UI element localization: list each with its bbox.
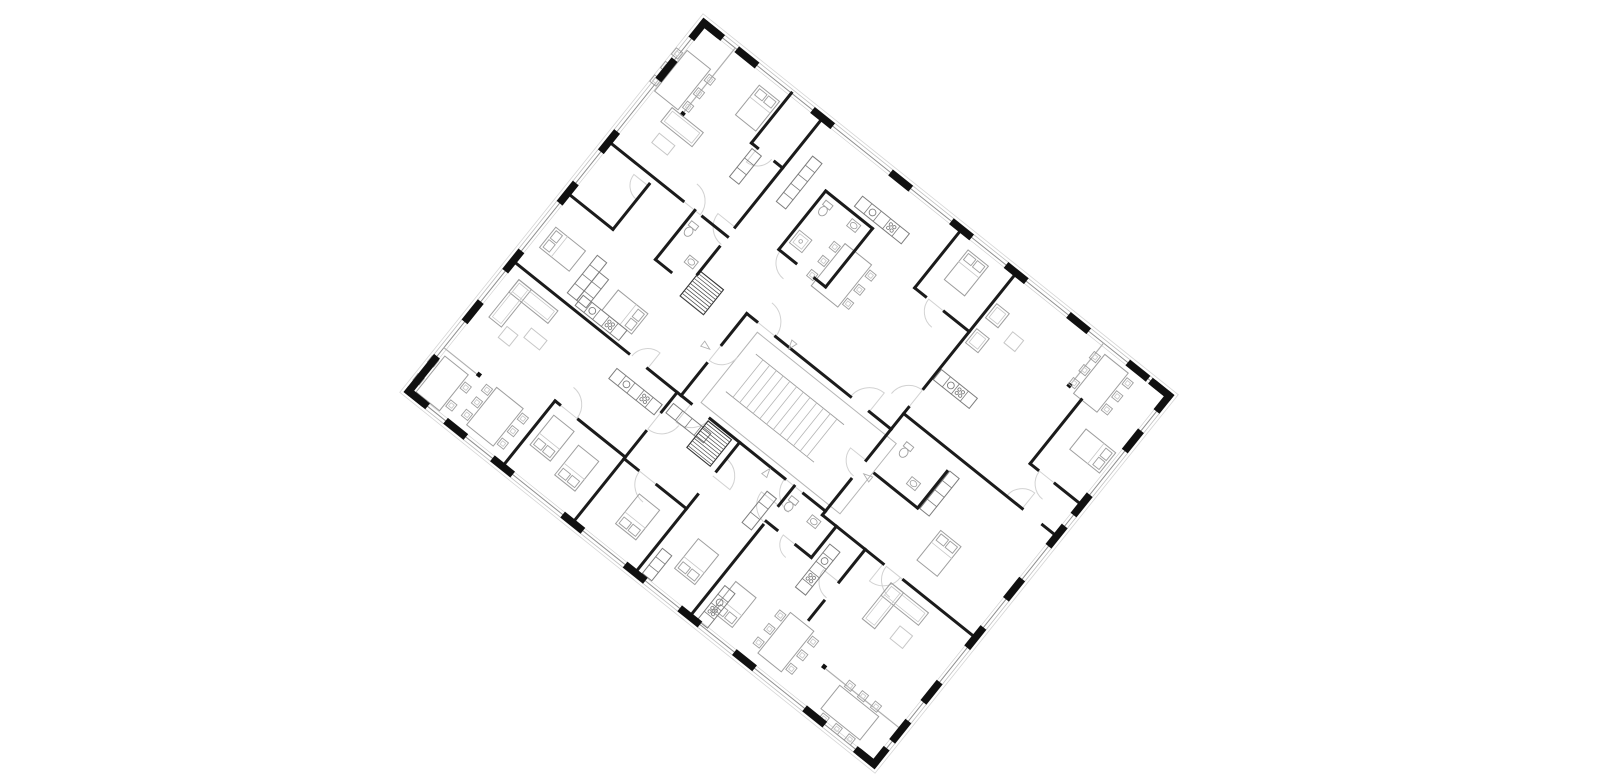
facade-pier [888,170,913,192]
hob-burner [643,400,647,404]
wall-line [822,515,883,564]
dining-table [803,237,879,313]
facade-pier [623,562,648,584]
bed [917,530,961,576]
chair-mark [868,273,874,279]
bed-frame [675,539,719,585]
chair-mark [845,301,851,307]
hatch-line [698,273,721,292]
hatch-line [692,441,715,460]
toilet [897,442,914,460]
wardrobe-div [805,165,814,173]
wall-line [681,395,691,403]
door-swing-arc [560,387,591,418]
table-top [821,685,879,740]
door-swing-arc [709,345,737,373]
hatch-line [696,276,719,295]
facade-pier [490,455,515,477]
wall-line [815,278,826,287]
shaft-hatch [680,271,723,315]
hob-burner [886,226,890,230]
cistern [788,496,798,506]
facade-pier [964,625,986,650]
wardrobe-div [685,418,693,427]
chair-mark [1104,407,1110,413]
sofa-frame [489,280,531,327]
facade-pier [557,181,579,206]
chair-mark [474,400,480,406]
wardrobe-frame [642,548,671,580]
cistern [688,221,698,231]
wall-line [681,363,707,395]
wall-line [825,479,851,511]
wardrobe-div [656,557,665,565]
hatch-line [692,281,715,300]
facade-pier [560,512,585,534]
wall-line [904,580,976,638]
counter-div [618,376,626,386]
wall-line [915,288,926,297]
basin-frame [847,219,861,233]
hatch-line [694,278,717,297]
hatch-line [702,428,725,447]
chair-mark [810,639,816,645]
hob-burner [711,612,715,616]
stair-tread [807,419,837,456]
toilet [816,200,833,218]
wardrobe-div [590,265,599,273]
hob-burner [954,391,958,395]
facade-pier [1004,262,1029,284]
washbasin [684,255,698,269]
bowl [897,446,909,459]
hob-burner [808,573,812,577]
hatch-line [690,283,713,302]
wall-line [918,471,947,508]
wall-line [1030,464,1038,470]
hob-burner [809,579,813,583]
door-swing-arc [851,378,885,412]
wall-line [839,549,865,582]
wall-line [503,401,556,467]
door-swing-arc [916,299,944,327]
door-swing-arc [632,340,660,368]
stair-tread [793,408,823,445]
wardrobe [666,403,711,442]
chair-mark [857,287,863,293]
bed-frame [944,250,988,296]
door-swing-arc [626,471,657,502]
hob-burner [961,390,965,394]
chair-mark [821,258,827,264]
wall-line [809,601,824,620]
hob-burner [607,320,611,324]
counter-div [873,211,881,221]
hob-burner [710,606,714,610]
hob-burner [645,396,649,400]
facade-pier [920,680,942,705]
facade-outline [409,23,1169,764]
coffee-table [652,133,675,155]
chair-mark [484,387,490,393]
bed [675,539,719,585]
wardrobe-div [791,183,800,191]
dining-table [459,381,531,452]
facade-pier [1125,360,1150,382]
wall-line [657,485,687,509]
wall-line [1055,484,1082,505]
wall-line [766,521,777,530]
wardrobe-div [927,499,936,507]
wardrobe [642,548,671,580]
stair-tread [800,414,830,451]
stair-tread [773,392,803,429]
bowl [682,225,694,238]
door-swing-arc [676,404,710,438]
wall-line [944,312,969,332]
facade-outline [404,18,1174,769]
stair-tread [740,365,770,402]
cistern [903,442,913,452]
stair-tread [780,398,810,435]
wall-line [891,407,909,429]
bed [712,581,756,627]
wall-line [776,337,851,397]
sofa-frame [881,583,928,625]
chair-mark [500,441,506,447]
facade-pier [1071,492,1093,517]
hatch-line [694,438,717,457]
counter-div [627,383,635,393]
wardrobe-frame [776,156,822,209]
chair-mark [832,244,838,250]
stair-tread [753,376,783,413]
sofa-frame [509,280,558,324]
chair-mark [799,652,805,658]
stair-tread [760,381,790,418]
door-swing-arc [713,459,744,490]
door-swing-arc [683,184,714,215]
sink-basin [946,381,956,391]
sink-basin [820,556,830,566]
wall-line [751,143,757,148]
facade-pier [655,57,677,82]
facade-outline [400,14,1179,773]
bed [735,85,779,131]
hatch-line [700,431,723,450]
counter-div [864,204,872,214]
wall-line [635,495,698,573]
facade-pier [677,605,702,627]
facade-inner-line [413,27,1165,760]
hatch-line [698,433,721,452]
stair-rail [756,354,843,424]
wall-line [751,93,791,143]
door-swing-arc [768,251,796,279]
hob-burner [805,576,809,580]
facade-pier [732,649,757,671]
facade-pier [598,129,620,154]
sink-basin [622,380,632,390]
wall-line [811,526,836,557]
wall-line [747,314,757,322]
wardrobe [920,471,959,516]
chair-mark [1114,394,1120,400]
wardrobe-div [935,490,944,498]
chair-mark [756,640,762,646]
wall-line [796,545,812,558]
kitchen-counter [933,370,977,409]
wall-line [609,142,683,201]
facade-pier [1046,524,1068,549]
wall-line [826,228,873,287]
sink-basin [588,306,598,316]
wall-line [722,314,747,345]
stair-tread [733,360,763,397]
coffee-table [890,626,912,648]
divider-post [476,372,482,378]
facade-pier [949,218,974,240]
facade-pier [443,418,468,440]
wall-line [624,459,638,470]
cistern [823,200,833,210]
wall-line [779,250,796,264]
door-swing-arc [757,303,791,337]
facade-pier [810,107,835,129]
hatch-line [680,296,703,315]
wall-line [869,412,891,430]
wardrobe-div [798,174,807,182]
hob-burner [639,397,643,401]
door-swing-arc [623,174,648,199]
hatch-line [684,291,707,310]
wall-line [1030,400,1081,464]
washbasin [807,515,821,529]
stair-tread [746,371,776,408]
bed-frame [917,530,961,576]
corridor-outline [701,332,896,514]
wall-line [804,494,826,512]
wardrobe-div [737,167,746,175]
bed-frame [555,445,599,491]
chair-mark [463,385,469,391]
wardrobe-div [942,480,951,488]
bed [616,494,660,540]
wardrobe-div [582,274,591,282]
washbasin [847,219,861,233]
wall-line [822,511,825,515]
wall-line [698,247,720,274]
facade-pier [802,705,827,727]
table-top [758,612,814,671]
basin-frame [807,515,821,529]
plan-group [400,14,1179,773]
loggia-divider [444,348,480,377]
bed [540,227,586,271]
hob-burner [812,576,816,580]
wardrobe-div [649,565,658,573]
canvas [0,0,1600,775]
counter-div [942,377,950,387]
table-top [1074,354,1129,412]
entrance-triangle [862,471,873,482]
wall-line [655,260,671,273]
hatch-line [688,286,711,305]
wall-line [875,474,918,508]
wall-line [710,419,785,479]
chair-mark [449,403,455,409]
facade-pier [734,46,759,68]
basin-frame [684,255,698,269]
door-swing-arc [1007,480,1035,508]
floor-plan-svg [0,0,1600,775]
wall-line [655,210,694,259]
door-swing-arc [648,412,679,443]
door-swing-arc [891,376,922,407]
chair-mark [778,613,784,619]
hob-burner [604,323,608,327]
facade-pier [1003,577,1025,602]
hatch-line [696,436,719,455]
hatch-line [688,446,711,465]
bed-frame [735,85,779,131]
hatch-line [682,293,705,312]
entrance-triangle [701,341,712,352]
chair-mark [1125,381,1131,387]
basin-frame [906,477,920,491]
chair-mark [520,416,526,422]
chair-mark [767,626,773,632]
wall-line [703,217,728,237]
dining-table [815,677,885,747]
bowl [782,500,794,513]
facade-pier [1066,312,1091,334]
wall-line [904,414,1023,509]
hob-burner [707,609,711,613]
facade-pier [462,299,484,324]
chair-mark [789,666,795,672]
wardrobe-div [759,502,768,510]
sink-basin [868,208,878,218]
sofa-frame [862,583,903,629]
drain [798,239,803,244]
hob-burner [608,326,612,330]
stair-rail [726,392,813,462]
chair-mark [464,412,470,418]
stair-tread [787,403,817,440]
bed-frame [712,581,756,627]
coffee-table [1004,332,1024,352]
bed-frame [540,227,586,271]
bed [944,250,988,296]
bowl [817,205,829,218]
washbasin [906,477,920,491]
bed-frame [616,494,660,540]
coffee-table [498,326,518,346]
facade-pier [502,249,524,274]
facade-pier [1122,428,1144,453]
hob-burner [957,387,961,391]
wardrobe-div [592,282,601,290]
hob-burner [958,393,962,397]
chair-mark [510,428,516,434]
hob-burner [642,394,646,398]
door-swing-arc [838,448,866,476]
wall-line [915,229,962,288]
wall-line [568,193,613,229]
stair-tread [767,387,797,424]
table-top [467,387,524,446]
hob-burner [892,225,896,229]
door-swing-arc [773,535,795,557]
wardrobe-div [575,283,584,291]
wardrobe-div [784,192,793,200]
hob-burner [889,228,893,232]
wardrobe [776,156,822,209]
door-swing-arc [1027,471,1055,499]
table-top [811,244,871,307]
coffee-table [524,328,547,350]
wall-line [775,162,783,168]
hob-burner [611,322,615,326]
wall-line [866,429,891,460]
wall-line [513,261,629,354]
bed [555,445,599,491]
hob-burner [889,222,893,226]
